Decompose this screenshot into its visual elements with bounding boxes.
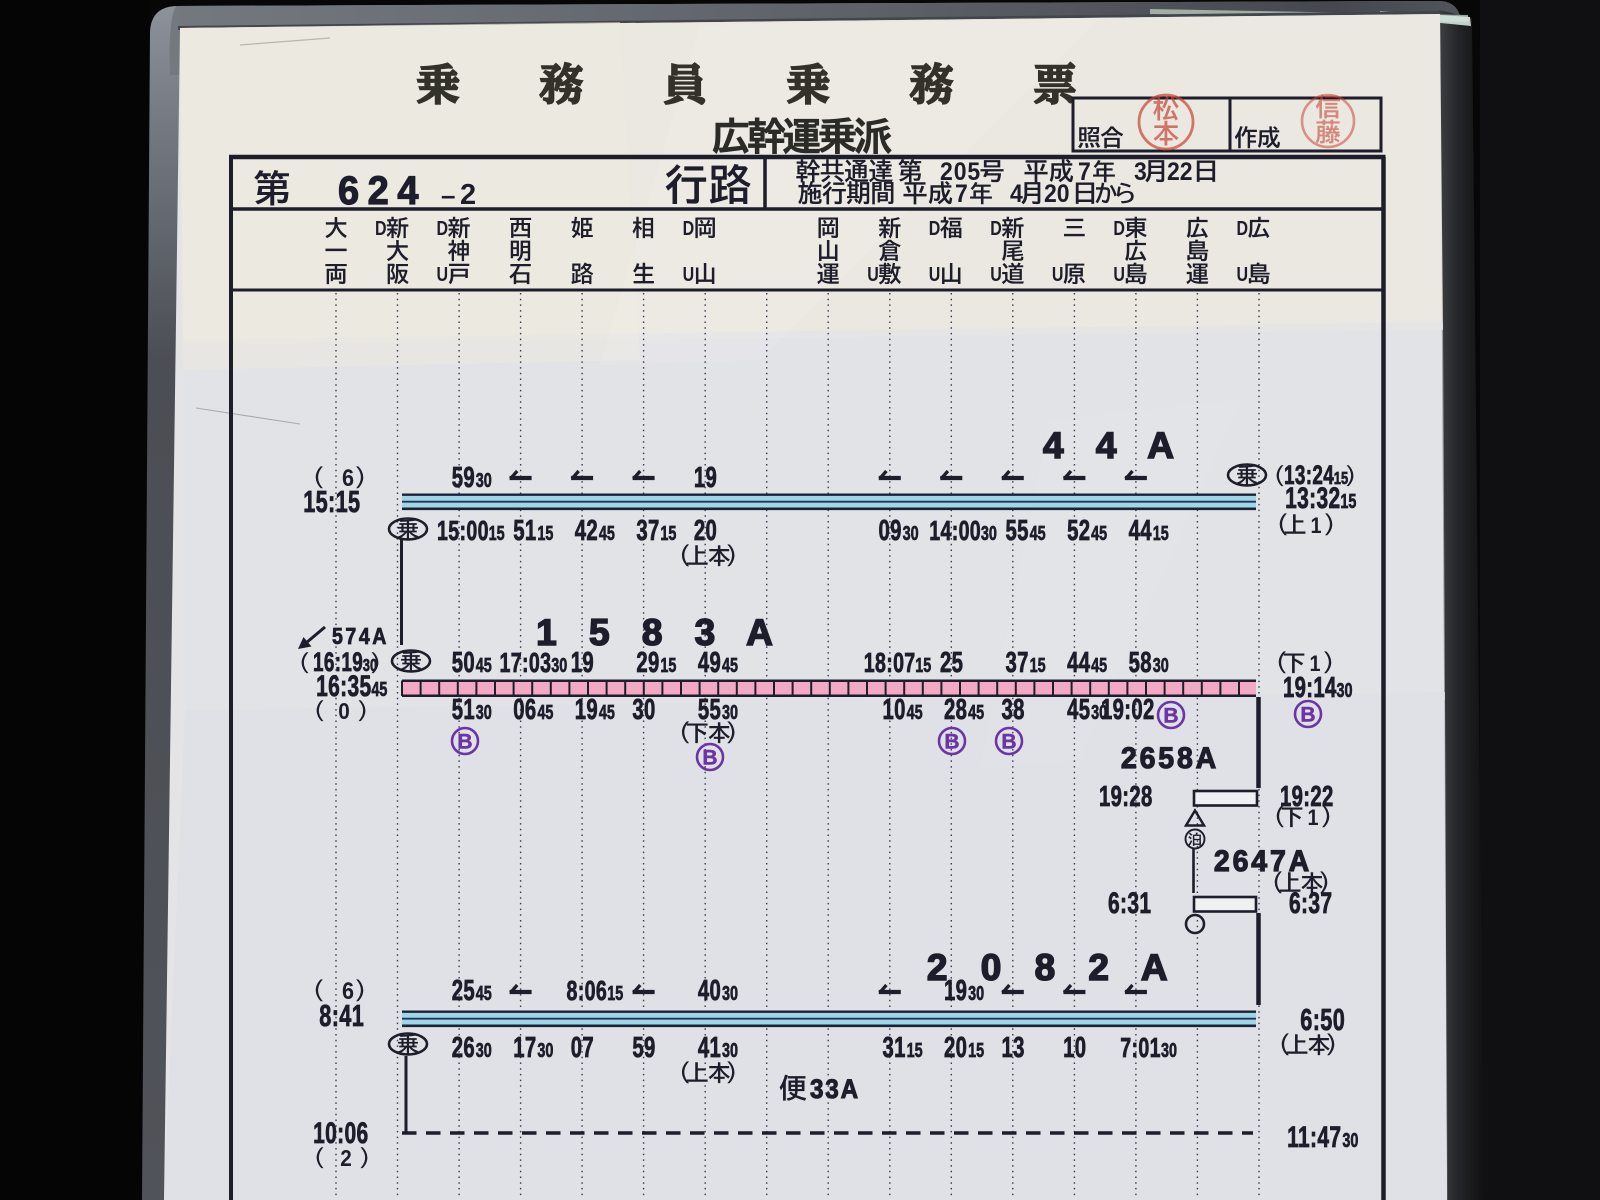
svg-text:25: 25 [452,975,475,1007]
svg-text:6:31: 6:31 [1108,888,1151,920]
svg-text:33A: 33A [810,1075,860,1104]
svg-text:07: 07 [571,1032,594,1064]
svg-text:7: 7 [1078,158,1091,186]
svg-text:3: 3 [1134,158,1147,186]
svg-text:30: 30 [1153,654,1169,677]
svg-text:15: 15 [660,654,676,677]
svg-text:30: 30 [722,701,738,724]
svg-text:45: 45 [476,654,492,677]
svg-text:U: U [929,263,941,285]
svg-text:30: 30 [476,1039,492,1062]
svg-text:37: 37 [636,515,659,547]
svg-text:U: U [1113,263,1125,285]
svg-text:30: 30 [476,469,492,492]
svg-text:55: 55 [1006,515,1029,547]
svg-text:10: 10 [1063,1032,1086,1064]
svg-text:30: 30 [537,1039,553,1062]
svg-text:U: U [990,263,1002,285]
svg-text:15: 15 [660,522,676,545]
svg-text:19:14: 19:14 [1283,672,1337,704]
svg-text:45: 45 [371,678,387,701]
svg-text:2: 2 [460,179,476,211]
svg-text:19: 19 [944,975,967,1007]
svg-text:29: 29 [636,647,659,679]
svg-text:45: 45 [968,701,984,724]
svg-text:4 4 A: 4 4 A [1043,425,1185,466]
svg-text:15: 15 [489,522,505,545]
svg-text:D: D [990,217,1002,239]
svg-text:30: 30 [1161,1039,1177,1062]
svg-text:B: B [1300,704,1315,727]
svg-text:–: – [441,180,455,210]
svg-text:52: 52 [1067,515,1090,547]
svg-text:2658A: 2658A [1121,742,1219,775]
svg-text:20: 20 [944,1032,967,1064]
svg-text:26: 26 [452,1032,475,1064]
svg-text:45: 45 [907,701,923,724]
svg-text:20: 20 [1044,180,1070,208]
svg-text:B: B [944,731,959,754]
svg-text:42: 42 [575,515,598,547]
svg-text:D: D [1236,217,1248,239]
svg-text:U: U [867,263,879,285]
svg-text:14:00: 14:00 [929,516,981,547]
svg-text:45: 45 [476,982,492,1005]
svg-text:44: 44 [1067,647,1090,679]
svg-text:28: 28 [944,694,967,726]
svg-text:51: 51 [513,515,536,547]
svg-text:574A: 574A [332,624,389,650]
svg-text:13:32: 13:32 [1285,483,1340,515]
svg-text:45: 45 [599,522,615,545]
svg-text:7: 7 [955,180,968,208]
svg-text:1: 1 [1307,806,1318,830]
svg-text:D: D [929,217,941,239]
svg-text:06: 06 [513,694,536,726]
svg-text:38: 38 [1002,694,1025,726]
svg-text:D: D [375,217,387,239]
svg-text:58: 58 [1129,647,1152,679]
svg-text:D: D [437,217,449,239]
svg-text:15: 15 [1030,654,1046,677]
svg-text:U: U [1052,263,1064,285]
svg-text:41: 41 [698,1032,721,1064]
svg-text:13: 13 [1002,1032,1025,1064]
svg-text:U: U [683,263,695,285]
svg-text:45: 45 [1091,522,1107,545]
svg-text:17: 17 [513,1032,536,1064]
svg-text:15: 15 [915,654,931,677]
svg-text:09: 09 [879,515,902,547]
svg-text:45: 45 [599,701,615,724]
svg-text:19: 19 [571,647,594,679]
svg-text:B: B [1001,731,1016,754]
svg-text:15: 15 [1340,490,1356,513]
svg-text:15: 15 [968,1039,984,1062]
svg-text:8:06: 8:06 [567,976,608,1007]
svg-text:59: 59 [632,1032,655,1064]
svg-text:30: 30 [722,982,738,1005]
svg-text:30: 30 [1337,679,1353,702]
svg-text:15: 15 [907,1039,923,1062]
svg-text:30: 30 [722,1039,738,1062]
svg-text:19: 19 [694,462,717,494]
svg-text:45: 45 [1091,654,1107,677]
svg-text:50: 50 [452,647,475,679]
svg-text:6:50: 6:50 [1300,1002,1345,1037]
svg-text:8:41: 8:41 [319,998,364,1033]
svg-text:D: D [683,217,695,239]
svg-text:30: 30 [968,982,984,1005]
svg-text:2647A: 2647A [1214,845,1312,878]
svg-text:25: 25 [940,647,963,679]
svg-text:D: D [1113,217,1125,239]
svg-text:30: 30 [1342,1129,1358,1152]
svg-text:6:37: 6:37 [1289,888,1332,920]
svg-text:U: U [1236,263,1248,285]
svg-text:30: 30 [981,522,997,545]
svg-text:15:00: 15:00 [437,516,489,547]
svg-text:30: 30 [903,522,919,545]
svg-text:19:28: 19:28 [1099,781,1153,813]
svg-text:45: 45 [1030,522,1046,545]
svg-text:55: 55 [698,694,721,726]
svg-text:45: 45 [537,701,553,724]
svg-text:2: 2 [340,1145,352,1171]
svg-text:49: 49 [698,647,721,679]
svg-text:10: 10 [883,694,906,726]
svg-text:11:47: 11:47 [1287,1122,1341,1154]
svg-text:18:07: 18:07 [864,648,916,679]
svg-text:624: 624 [338,169,427,213]
svg-text:45: 45 [1067,694,1090,726]
svg-text:37: 37 [1006,647,1029,679]
svg-text:B: B [1163,705,1178,728]
svg-text:40: 40 [698,975,721,1007]
svg-text:15: 15 [607,982,623,1005]
svg-text:20: 20 [694,515,717,547]
svg-text:7:01: 7:01 [1120,1033,1161,1064]
svg-text:59: 59 [452,462,475,494]
svg-text:19: 19 [575,694,598,726]
svg-text:44: 44 [1129,515,1152,547]
svg-text:1: 1 [1310,514,1321,538]
svg-text:19:02: 19:02 [1101,694,1155,726]
svg-text:30: 30 [476,701,492,724]
svg-text:17:03: 17:03 [500,648,552,679]
svg-text:15: 15 [537,522,553,545]
svg-text:51: 51 [452,694,475,726]
svg-text:22: 22 [1167,158,1193,186]
svg-text:15: 15 [1153,522,1169,545]
svg-text:45: 45 [722,654,738,677]
svg-text:U: U [437,263,449,285]
svg-text:0: 0 [338,698,350,724]
svg-text:15:15: 15:15 [303,484,360,519]
svg-text:B: B [457,731,472,754]
svg-text:B: B [702,747,717,770]
svg-text:4: 4 [1010,180,1023,208]
svg-text:30: 30 [551,654,567,677]
svg-text:30: 30 [632,694,655,726]
svg-text:31: 31 [883,1032,906,1064]
